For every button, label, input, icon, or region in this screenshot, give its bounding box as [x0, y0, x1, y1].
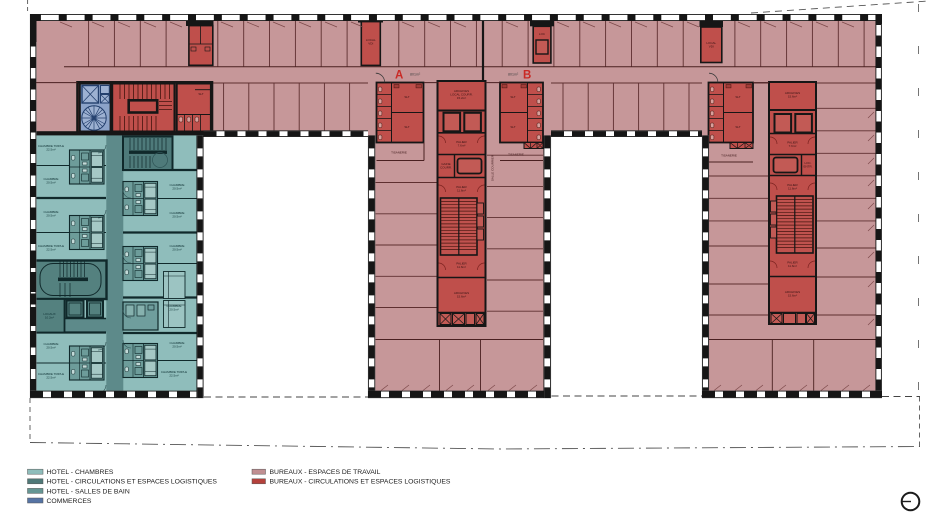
svg-text:SLT: SLT — [198, 92, 203, 96]
svg-text:11.6m²: 11.6m² — [788, 187, 797, 191]
svg-text:VDI: VDI — [368, 42, 373, 46]
svg-text:BUREAUX - ESPACES DE TRAVAIL: BUREAUX - ESPACES DE TRAVAIL — [270, 469, 381, 476]
svg-text:SLT: SLT — [735, 125, 740, 129]
svg-text:B: B — [523, 70, 531, 82]
svg-text:15.6m²: 15.6m² — [788, 95, 797, 99]
svg-text:SLT: SLT — [404, 125, 409, 129]
svg-text:7.6m²: 7.6m² — [458, 144, 466, 148]
svg-text:20.5m²: 20.5m² — [46, 214, 55, 218]
svg-text:801m²: 801m² — [410, 73, 421, 77]
svg-text:LOC: LOC — [539, 32, 546, 36]
svg-text:TISANERIE: TISANERIE — [508, 153, 524, 157]
svg-text:A: A — [395, 70, 403, 82]
svg-text:SLT: SLT — [510, 95, 515, 99]
svg-text:11.6m²: 11.6m² — [457, 189, 466, 193]
svg-text:11.6m²: 11.6m² — [457, 265, 466, 269]
svg-text:20.5m²: 20.5m² — [172, 345, 181, 349]
svg-text:15.6m²: 15.6m² — [457, 295, 466, 299]
svg-text:HOTEL - CHAMBRES: HOTEL - CHAMBRES — [47, 469, 114, 476]
svg-text:15.2m²: 15.2m² — [457, 96, 466, 100]
svg-text:7.6m²: 7.6m² — [789, 144, 797, 148]
svg-text:20.5m²: 20.5m² — [172, 248, 181, 252]
svg-text:22.5m²: 22.5m² — [46, 148, 55, 152]
svg-text:TISANERIE: TISANERIE — [721, 154, 737, 158]
svg-text:SALLE COURRIER: SALLE COURRIER — [491, 154, 495, 181]
svg-text:10.2m²: 10.2m² — [45, 316, 54, 320]
svg-text:801m²: 801m² — [508, 73, 519, 77]
svg-text:20.5m²: 20.5m² — [172, 215, 181, 219]
svg-text:HOTEL - SALLES DE BAIN: HOTEL - SALLES DE BAIN — [47, 488, 130, 495]
svg-text:BUREAUX - CIRCULATIONS ET ESPA: BUREAUX - CIRCULATIONS ET ESPACES LOGIST… — [270, 479, 451, 486]
svg-text:SLT: SLT — [404, 95, 409, 99]
svg-text:22.5m²: 22.5m² — [46, 376, 55, 380]
svg-text:SLT: SLT — [735, 95, 740, 99]
svg-text:22.5m²: 22.5m² — [46, 248, 55, 252]
svg-text:COMMERCES: COMMERCES — [47, 498, 92, 505]
svg-text:COURR.: COURR. — [440, 166, 452, 170]
svg-text:TISANERIE: TISANERIE — [391, 151, 407, 155]
svg-text:20.5m²: 20.5m² — [169, 308, 178, 312]
svg-text:VDI: VDI — [709, 45, 714, 49]
svg-text:22.5m²: 22.5m² — [169, 374, 178, 378]
svg-text:20.5m²: 20.5m² — [172, 187, 181, 191]
svg-text:11.6m²: 11.6m² — [788, 264, 797, 268]
svg-text:15.6m²: 15.6m² — [788, 294, 797, 298]
svg-text:SLT: SLT — [510, 125, 515, 129]
svg-text:20.5m²: 20.5m² — [46, 346, 55, 350]
svg-text:20.5m²: 20.5m² — [46, 181, 55, 185]
svg-text:HOTEL - CIRCULATIONS ET ESPACE: HOTEL - CIRCULATIONS ET ESPACES LOGISTIQ… — [47, 479, 218, 486]
svg-text:ENTR.: ENTR. — [804, 165, 813, 169]
